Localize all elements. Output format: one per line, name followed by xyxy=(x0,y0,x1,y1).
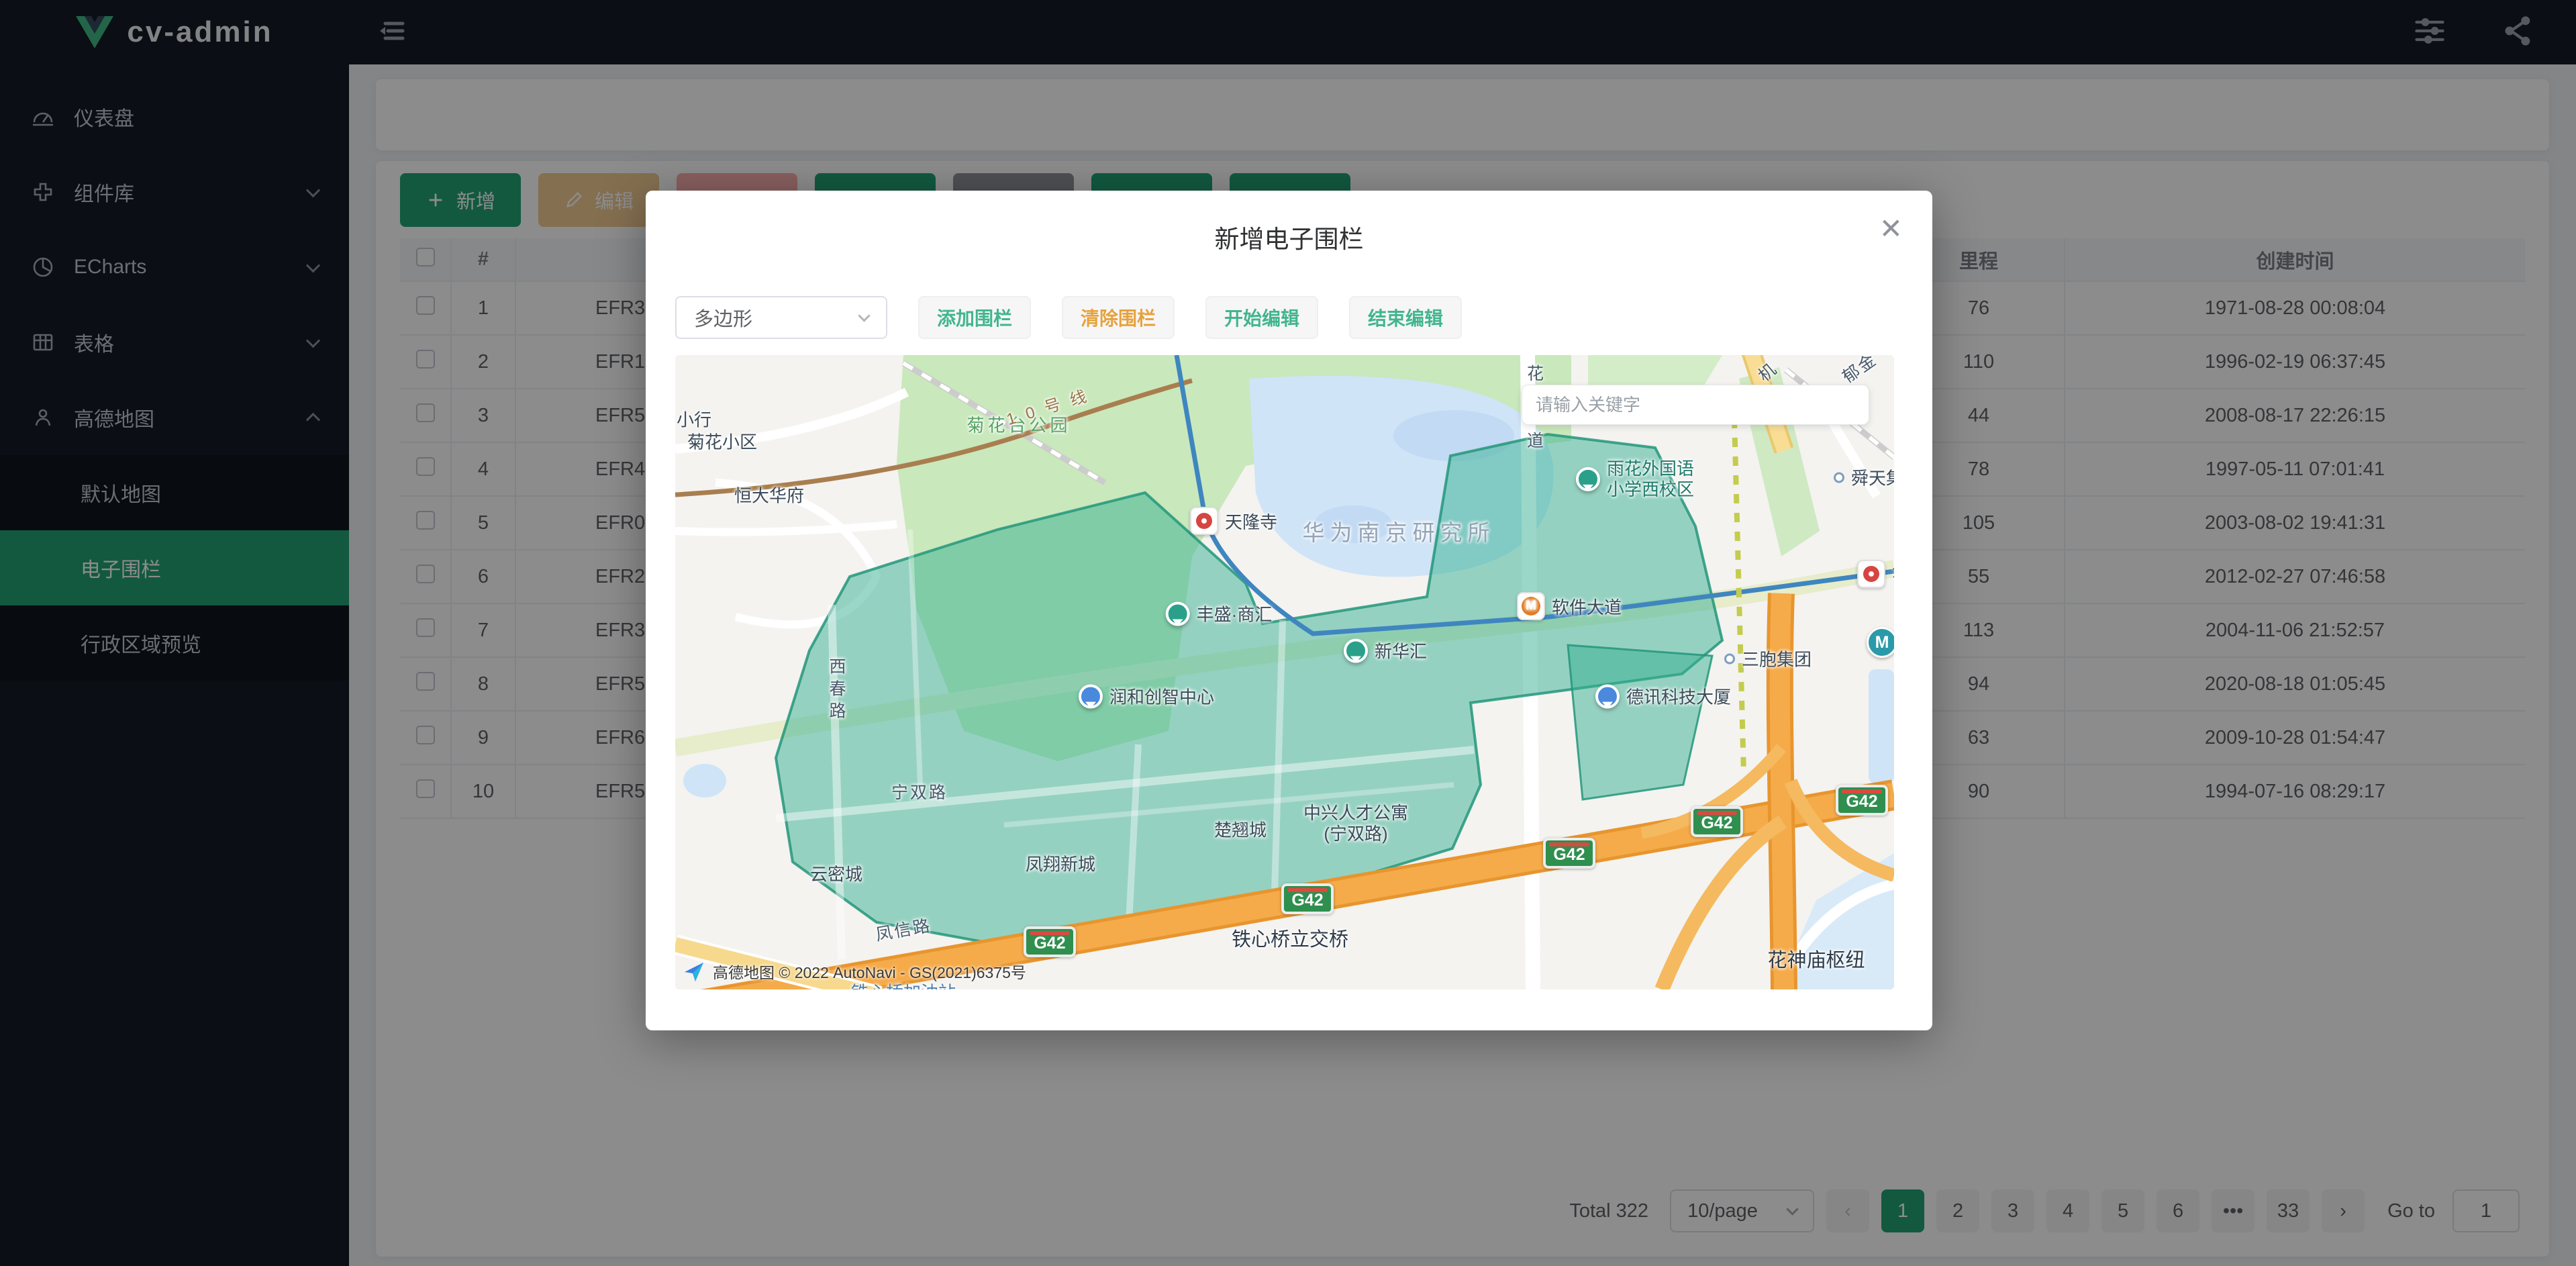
road-badge-G42: G42 xyxy=(1836,785,1888,816)
map-label-text: 菊花小区 xyxy=(687,429,757,454)
map-label-花神庙枢纽: 花神庙枢纽 xyxy=(1767,944,1865,973)
road-badge-G42: G42 xyxy=(1281,883,1334,914)
map-label-丰盛·商汇: 丰盛·商汇 xyxy=(1166,601,1273,626)
map-label-三胞集团: 三胞集团 xyxy=(1724,646,1812,671)
map-attribution: 高德地图 © 2022 AutoNavi - GS(2021)6375号 xyxy=(683,960,1026,983)
map-label-天隆寺: 天隆寺 xyxy=(1190,507,1277,535)
map-label-text: 宁双路 xyxy=(891,779,948,804)
map-label-text: 华为南京研究所 xyxy=(1303,515,1495,547)
blue-pin-icon xyxy=(1079,684,1103,708)
teal-pin-icon xyxy=(1166,601,1190,626)
map-search-input[interactable] xyxy=(1522,385,1869,425)
map-label-雨花外国语: 雨花外国语小学西校区 xyxy=(1576,458,1694,500)
map-label-西春路: 西春路 xyxy=(824,658,848,724)
map-label-中兴人才公寓: 中兴人才公寓(宁双路) xyxy=(1303,803,1408,844)
map-label-text: 楚翘城 xyxy=(1214,817,1267,842)
temple-pin-icon xyxy=(1190,507,1218,535)
map-label-云密城: 云密城 xyxy=(810,861,862,886)
map-label-text: 铁心桥立交桥 xyxy=(1232,924,1348,952)
map-label-恒大华府: 恒大华府 xyxy=(734,483,804,507)
map-label-text: 道 xyxy=(1527,428,1546,452)
map-label-text: 小行 xyxy=(677,407,711,432)
map-label-text: 中兴人才公寓(宁双路) xyxy=(1303,803,1408,844)
map-label-新华汇: 新华汇 xyxy=(1344,638,1427,663)
添加围栏-button[interactable]: 添加围栏 xyxy=(918,296,1031,339)
map-label-舜天集: 舜天集 xyxy=(1834,465,1894,490)
map-label-text: 花 xyxy=(1527,360,1546,385)
fence-controls: 多边形 添加围栏清除围栏开始编辑结束编辑 xyxy=(675,296,1462,339)
fence-buttons: 添加围栏清除围栏开始编辑结束编辑 xyxy=(918,296,1462,339)
结束编辑-button[interactable]: 结束编辑 xyxy=(1349,296,1462,339)
school-pin-icon xyxy=(1576,467,1600,491)
map-label-道: 道 xyxy=(1527,428,1546,452)
chevron-down-icon xyxy=(858,309,870,322)
map-label-花: 花 xyxy=(1857,560,1894,588)
teal-pin-icon xyxy=(1344,638,1368,663)
map-label-text: 凤翔新城 xyxy=(1026,851,1095,876)
map-label-text: 丰盛·商汇 xyxy=(1197,601,1273,626)
map-label-德讯科技大厦: 德讯科技大厦 xyxy=(1595,684,1731,709)
blue-pin-icon xyxy=(1595,684,1620,708)
map-label-凤翔新城: 凤翔新城 xyxy=(1026,851,1095,876)
map-label-text: 西春路 xyxy=(824,658,848,724)
map-label-text: 润和创智中心 xyxy=(1109,684,1214,709)
amap-canvas[interactable]: 小行菊花小区恒大华府菊花台公园天隆寺华为南京研究所雨花外国语小学西校区舜天集花道… xyxy=(675,355,1894,989)
map-search xyxy=(1522,385,1869,425)
map-label-润和创智中心: 润和创智中心 xyxy=(1079,684,1214,709)
map-label-text: 花神庙枢纽 xyxy=(1767,944,1865,973)
map-label-铁心桥立交桥: 铁心桥立交桥 xyxy=(1232,924,1348,952)
map-label-text: 花 xyxy=(1892,562,1894,587)
map-label-text: 新华汇 xyxy=(1375,638,1427,663)
modal-title: 新增电子围栏 xyxy=(646,219,1932,255)
map-label-text: 舜天集 xyxy=(1851,465,1894,490)
map-label-text: 德讯科技大厦 xyxy=(1626,684,1731,709)
dot-pin-icon xyxy=(1834,472,1844,483)
map-label-text: 天隆寺 xyxy=(1225,509,1277,534)
map-label-楚翘城: 楚翘城 xyxy=(1214,817,1267,842)
map-label-text: 软件大道 xyxy=(1552,594,1622,619)
map-label-菊花小区: 菊花小区 xyxy=(687,429,757,454)
清除围栏-button[interactable]: 清除围栏 xyxy=(1062,296,1175,339)
road-badge-G42: G42 xyxy=(1691,806,1743,837)
map-label-宁双路: 宁双路 xyxy=(891,779,948,804)
map-label-text: 云密城 xyxy=(810,861,862,886)
dot-pin-icon xyxy=(1724,653,1735,664)
add-fence-modal: 新增电子围栏 ✕ 多边形 添加围栏清除围栏开始编辑结束编辑 xyxy=(646,191,1932,1030)
map-label-软件大道: M软件大道 xyxy=(1517,592,1622,620)
metro-pin-icon: M xyxy=(1517,592,1545,620)
shape-select-value: 多边形 xyxy=(694,303,752,332)
map-label-华为南京研究所: 华为南京研究所 xyxy=(1303,515,1495,547)
road-badge-G42: G42 xyxy=(1024,926,1076,957)
close-icon[interactable]: ✕ xyxy=(1879,215,1903,243)
开始编辑-button[interactable]: 开始编辑 xyxy=(1205,296,1318,339)
amap-logo-icon xyxy=(683,960,706,983)
map-label-text: 恒大华府 xyxy=(734,483,804,507)
road-badge-G42: G42 xyxy=(1543,838,1595,869)
map-label-text: 三胞集团 xyxy=(1742,646,1812,671)
map-label-小行: 小行 xyxy=(677,407,711,432)
metro-station-icon: M xyxy=(1867,627,1894,658)
map-label-花: 花 xyxy=(1527,360,1546,385)
shape-select[interactable]: 多边形 xyxy=(675,296,887,339)
map-label-text: 雨花外国语小学西校区 xyxy=(1607,458,1694,500)
attribution-text: 高德地图 © 2022 AutoNavi - GS(2021)6375号 xyxy=(713,960,1026,983)
temple-pin-icon xyxy=(1857,560,1885,588)
